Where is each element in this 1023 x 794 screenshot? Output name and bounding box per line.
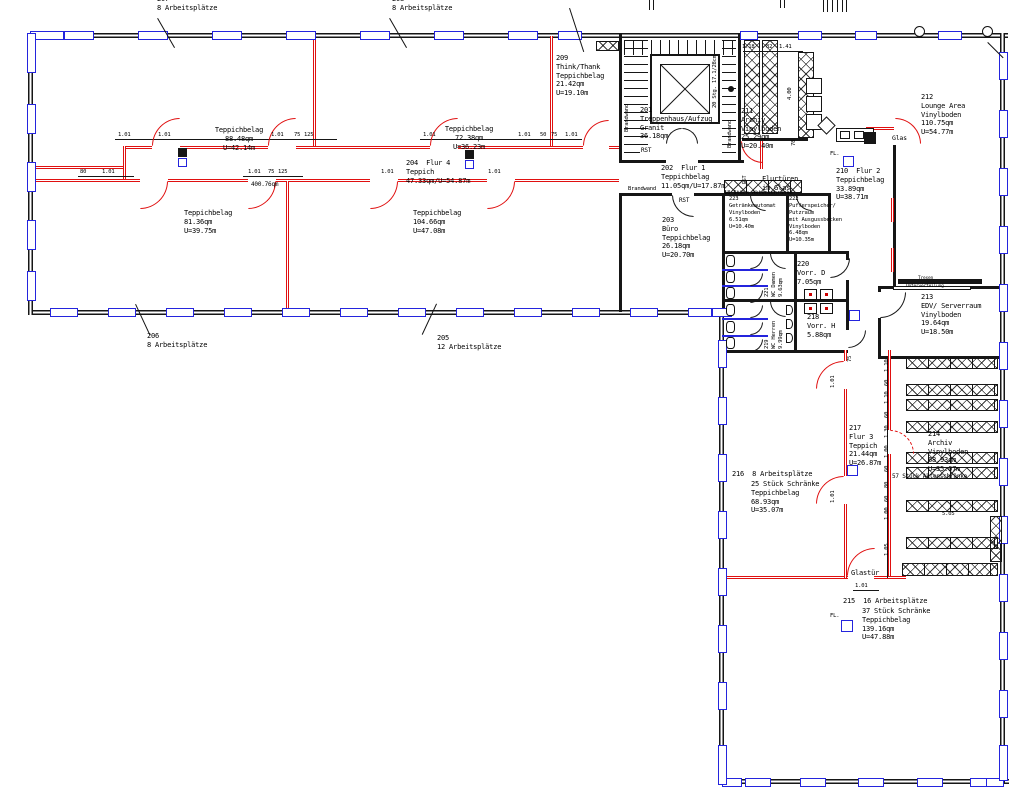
dimension-label: 1.01 — [158, 132, 170, 139]
dimension-label: 1.01 — [855, 583, 867, 590]
dimension-label: 125 — [304, 132, 313, 139]
window — [50, 308, 78, 317]
fire-extinguisher-icon — [849, 310, 860, 321]
dimension-label: 4.00 — [787, 88, 794, 100]
room-label-223: 223 Getränkeautomat Vinylboden 6.51qm U=… — [729, 196, 776, 230]
note-unterverteilung: Unterverteilung — [906, 284, 944, 290]
window — [740, 31, 758, 40]
toilet-fixture — [726, 321, 735, 333]
dimension-label: 75 — [551, 132, 557, 139]
dimension-label: 1.01 — [565, 132, 577, 139]
partition-wall — [296, 146, 430, 149]
fire-extinguisher-icon — [841, 620, 853, 632]
partition-wall — [609, 146, 619, 149]
window — [360, 31, 390, 40]
window — [340, 308, 368, 317]
partition-wall — [123, 146, 126, 179]
urinal-fixture — [786, 319, 793, 329]
window — [108, 308, 136, 317]
dimension-label: 1.01 — [271, 132, 283, 139]
door-swing-arc — [750, 322, 763, 335]
room-label-201: 201 Treppenhaus/Aufzug Granit 36.18qm — [640, 106, 712, 141]
partition-wall — [286, 181, 289, 310]
stall-partition — [722, 285, 768, 287]
shelf-cabinet — [906, 399, 998, 411]
interior-wall — [619, 193, 622, 312]
dimension-label: 75 — [847, 356, 854, 362]
room-label-203: 203 Büro Teppichbelag 26.18qm U=20.70m — [662, 216, 710, 260]
area-label-total: 400.76qm — [251, 181, 278, 189]
fire-extinguisher-icon — [178, 158, 187, 167]
room-label-216: 216 8 Arbeitsplätze — [732, 470, 812, 479]
dimension-label: 1.10 — [884, 392, 891, 404]
window — [286, 31, 316, 40]
room-label-212: 212 Lounge Area Vinylboden 110.75qm U=54… — [921, 93, 965, 137]
partition-wall — [844, 504, 847, 578]
window — [718, 568, 727, 596]
dimension-label: 1.01 — [830, 491, 837, 503]
partition-wall — [123, 146, 152, 149]
detail-box — [806, 78, 822, 94]
partition-wall — [722, 576, 848, 579]
window — [917, 778, 943, 787]
toilet-fixture — [726, 337, 735, 349]
room-label-202: 202 Flur 1 Teppichbelag 11.05qm/U=17.87m — [661, 164, 725, 190]
dimension-label: 80 — [80, 169, 86, 176]
dimension-label: 1.01 — [118, 132, 130, 139]
stall-partition — [722, 318, 768, 320]
dimension-label: 125 — [278, 169, 287, 176]
window — [224, 308, 252, 317]
window — [745, 778, 771, 787]
room-label-206: 206 8 Arbeitsplätze — [147, 332, 207, 350]
dimension-label: 5.05 — [942, 511, 954, 518]
detail-bar — [780, 0, 781, 8]
dimension-label: 1.01 — [102, 169, 114, 176]
detail-bar — [842, 0, 843, 12]
detail-bar — [837, 0, 838, 12]
dimension-label: 60 — [884, 496, 891, 502]
note-rst-3: RST — [742, 176, 748, 184]
door-swing-arc — [880, 292, 906, 318]
shelf-cabinet — [906, 357, 998, 369]
window — [999, 632, 1008, 660]
dimension-label: 1.01 — [830, 376, 837, 388]
detail-bar — [243, 176, 303, 177]
detail-box — [840, 131, 850, 139]
note-brandwand-1: Brandwand — [624, 104, 631, 132]
window — [999, 458, 1008, 486]
partition-wall — [313, 36, 316, 146]
room-label-217: 217 Flur 3 Teppich 21.44qm U=26.87m — [849, 424, 881, 468]
detail-bar — [743, 51, 803, 52]
door-swing-arc — [890, 430, 914, 454]
shelf-cabinet — [906, 537, 998, 549]
window — [798, 31, 822, 40]
room-label-210: 210 Flur 2 Teppichbelag 33.89qm U=38.71m — [836, 167, 884, 202]
area-label-88qm: Teppichbelag 88.48qm U=42.14m — [207, 126, 271, 152]
window — [938, 31, 962, 40]
window — [858, 778, 884, 787]
room-label-214: 214 Archiv Vinylboden 68.93qm U=35.07m — [928, 430, 968, 474]
floor-plan-canvas: 207 8 Arbeitsplätze208 8 Arbeitsplätze20… — [0, 0, 1023, 794]
note-fl-2: FL. — [830, 613, 839, 620]
dimension-label: 60 — [884, 412, 891, 418]
detail-bar — [864, 132, 876, 144]
window — [166, 308, 194, 317]
door-swing-arc — [848, 330, 866, 348]
room-label-219: 219 WC Herren 9.99qm — [764, 321, 785, 349]
detail-box — [806, 96, 822, 112]
room-label-222: 222 Pufferspeicher/ Putzraum mit Ausguss… — [789, 196, 842, 244]
door-swing-arc — [140, 181, 168, 209]
note-flurtueren: Flurtüren in Glas — [762, 175, 798, 193]
dimension-label: 78 — [791, 140, 798, 146]
window — [999, 226, 1008, 254]
interior-wall — [878, 318, 881, 356]
detail-bar — [827, 0, 828, 12]
exterior-wall — [719, 310, 724, 784]
detail-bar — [832, 0, 833, 12]
room-label-215b: 37 Stück Schränke Teppichbelag 139.16qm … — [862, 607, 930, 642]
window — [572, 308, 600, 317]
dimension-label: 1.01 — [488, 169, 500, 176]
interior-wall — [722, 350, 848, 353]
window — [282, 308, 310, 317]
window — [718, 397, 727, 425]
dimension-label: 1.01 — [248, 169, 260, 176]
dimension-label: 82 — [766, 44, 772, 51]
room-label-215: 215 16 Arbeitsplätze — [843, 597, 927, 606]
fire-extinguisher-icon — [843, 156, 854, 167]
dimension-label: 1.10 — [884, 360, 891, 372]
room-label-207: 207 8 Arbeitsplätze — [157, 0, 217, 13]
door-swing-arc — [487, 181, 515, 209]
dimension-label: 1.18 — [742, 44, 754, 51]
stall-partition — [722, 269, 768, 271]
dimension-label: 1.01 — [381, 169, 393, 176]
window — [212, 31, 242, 40]
door-swing-arc — [583, 120, 609, 146]
note-tresen: Tresen — [918, 276, 933, 282]
room-label-205: 205 12 Arbeitsplätze — [437, 334, 501, 352]
dimension-label: 50 — [540, 132, 546, 139]
door-swing-arc — [750, 305, 763, 318]
dimension-label: 1.01 — [518, 132, 530, 139]
column-circle — [728, 86, 734, 92]
note-57-aktenschraenke: 57 Stück Aktenschränke — [892, 473, 967, 481]
dimension-label: 1.05 — [884, 544, 891, 556]
shelf-cabinet — [902, 563, 998, 576]
partition-wall — [276, 179, 370, 182]
dimension-label: 1.30 — [884, 426, 891, 438]
window — [718, 745, 727, 785]
note-fl-1: FL. — [830, 151, 839, 158]
shelf-cabinet — [596, 41, 620, 51]
note-brandwand-2: Brandwand — [727, 120, 734, 148]
room-label-216b: 25 Stück Schränke Teppichbelag 68.93qm U… — [751, 480, 819, 515]
dimension-label: 1.01 — [423, 132, 435, 139]
washbasin-fixture — [820, 289, 833, 300]
detail-bar — [846, 0, 847, 12]
window — [999, 745, 1008, 781]
detail-bar — [78, 176, 134, 177]
stairs-flight-top — [624, 40, 736, 55]
partition-wall — [35, 179, 140, 182]
dimension-label: 60 — [884, 380, 891, 386]
note-brandwand-3: Brandwand — [627, 186, 657, 193]
window — [27, 162, 36, 192]
washbasin-fixture — [804, 289, 817, 300]
wall-symbol — [178, 148, 187, 157]
window — [64, 31, 94, 40]
room-label-218: 218 Vorr. H 5.88qm — [807, 313, 835, 339]
toilet-fixture — [726, 287, 735, 299]
interior-wall — [619, 33, 622, 163]
window — [999, 690, 1008, 718]
note-rst-1: RST — [640, 147, 652, 155]
room-label-213: 213 EDV/ Serverraum Vinylboden 19.64qm U… — [921, 293, 981, 337]
partition-wall — [891, 198, 894, 222]
window — [434, 31, 464, 40]
detail-box — [854, 131, 864, 139]
door-swing-arc — [770, 301, 786, 317]
window — [999, 284, 1008, 312]
area-label-72qm: Teppichbelag 72.38qm U=36.23m — [437, 125, 501, 151]
dimension-label: 1.00 — [884, 446, 891, 458]
window — [27, 104, 36, 134]
shelf-cabinet — [990, 516, 1002, 562]
dimension-label: 1.00 — [884, 508, 891, 520]
window — [398, 308, 426, 317]
leader-line — [135, 304, 150, 335]
window — [999, 168, 1008, 196]
window — [456, 308, 484, 317]
dimension-label: 60 — [884, 466, 891, 472]
interior-wall — [722, 193, 725, 312]
window — [999, 574, 1008, 602]
toilet-fixture — [726, 271, 735, 283]
urinal-fixture — [786, 305, 793, 315]
window — [514, 308, 542, 317]
door-swing-arc — [750, 256, 763, 269]
note-stairs: 20 Stg. 17.1/28cm — [712, 55, 719, 108]
window — [138, 31, 168, 40]
stall-partition — [722, 335, 768, 337]
partition-wall — [891, 248, 894, 272]
window — [718, 511, 727, 539]
detail-bar — [784, 0, 785, 8]
interior-wall — [619, 193, 672, 196]
window — [630, 308, 658, 317]
window — [855, 31, 877, 40]
window — [27, 220, 36, 250]
room-label-209: 209 Think/Thank Teppichbelag 21.42qm U=1… — [556, 54, 604, 98]
room-label-211: 211 Archiv Vinylboden 25.29qm U=20.40m — [741, 107, 781, 151]
dimension-label: 75 — [294, 132, 300, 139]
window — [718, 625, 727, 653]
window — [800, 778, 826, 787]
dimension-label: 1.41 — [779, 44, 791, 51]
interior-wall — [619, 160, 666, 163]
detail-bar — [649, 0, 650, 10]
window — [999, 110, 1008, 138]
interior-wall — [846, 280, 849, 330]
urinal-fixture — [786, 333, 793, 343]
door-swing-arc — [830, 258, 850, 278]
window — [999, 400, 1008, 428]
window — [27, 33, 36, 73]
detail-bar — [823, 0, 824, 12]
partition-wall — [168, 179, 248, 182]
room-label-204: 204 Flur 4 Teppich 47.33qm/U=54.87m — [406, 159, 470, 185]
toilet-fixture — [726, 255, 735, 267]
door-swing-arc — [370, 181, 398, 209]
detail-bar — [653, 0, 654, 10]
partition-wall — [844, 389, 847, 476]
column-circle — [982, 26, 993, 37]
partition-wall — [550, 36, 553, 146]
window — [688, 308, 712, 317]
toilet-fixture — [726, 304, 735, 316]
window — [508, 31, 538, 40]
area-label-104qm: Teppichbelag 104.66qm U=47.08m — [413, 209, 461, 235]
room-label-220: 220 Vorr. D 7.05qm — [797, 260, 825, 286]
door-swing-arc — [770, 253, 786, 269]
column-circle — [914, 26, 925, 37]
note-glastuer: Glastür — [851, 569, 879, 578]
window — [718, 454, 727, 482]
area-label-81qm: Teppichbelag 81.36qm U=39.75m — [184, 209, 232, 235]
dimension-label: 75 — [268, 169, 274, 176]
room-label-208: 208 8 Arbeitsplätze — [392, 0, 452, 13]
window — [999, 342, 1008, 370]
window — [27, 271, 36, 301]
partition-wall — [515, 179, 619, 182]
room-label-221: 221 WC Damen 9.63qm — [764, 272, 785, 297]
window — [718, 682, 727, 710]
dimension-label: 80 — [884, 482, 891, 488]
detail-bar — [853, 590, 879, 591]
wall-symbol — [465, 150, 474, 159]
shelf-cabinet — [906, 384, 998, 396]
note-glas: Glas — [891, 134, 908, 142]
note-rst-2: RST — [678, 197, 690, 205]
